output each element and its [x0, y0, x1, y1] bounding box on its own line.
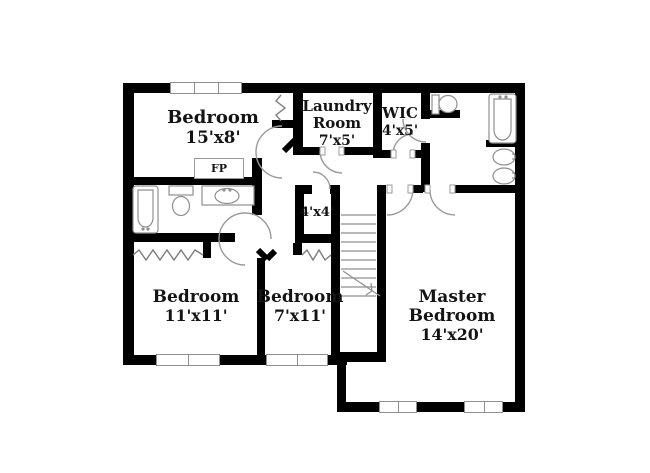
room-label-master: Master Bedroom 14'x20'	[394, 288, 510, 345]
room-label-bedroom-top: Bedroom 15'x8'	[150, 108, 276, 148]
room-label-bedroom-left: Bedroom 11'x11'	[133, 288, 259, 326]
door-leaves	[258, 136, 299, 259]
sink-vanity	[202, 186, 254, 205]
door-arc	[245, 213, 271, 239]
room-dims: 14'x20'	[420, 325, 483, 344]
room-label-closet-4x4: 4'x4'	[296, 205, 338, 221]
closet-zigzag	[133, 250, 203, 260]
window	[156, 354, 220, 366]
stairs-break-line	[343, 271, 380, 296]
fireplace-label: FP	[211, 162, 227, 175]
room-name: Bedroom	[153, 287, 240, 307]
room-dims: 11'x11'	[164, 306, 227, 325]
fireplace: FP	[194, 158, 244, 179]
door-jambs	[320, 147, 455, 193]
toilet	[432, 95, 457, 114]
room-dims: 7'x11'	[274, 306, 326, 325]
room-name: Bedroom	[257, 287, 344, 307]
door-leaf	[267, 251, 275, 259]
window	[266, 354, 328, 366]
closet-zigzag	[302, 250, 331, 260]
room-label-bedroom-mid: Bedroom 7'x11'	[255, 288, 345, 326]
window	[379, 401, 417, 413]
room-label-laundry: Laundry Room 7'x5'	[294, 98, 380, 149]
door-arc	[313, 172, 330, 189]
floor-plan: FP Bedroom 15'x8' Laundry Room 7'x5' WIC…	[0, 0, 650, 473]
bathtub	[133, 186, 158, 233]
room-name: WIC	[382, 104, 418, 122]
room-dims: 4'x4'	[300, 205, 334, 220]
closet-zigzag	[276, 95, 285, 121]
sink	[493, 168, 515, 184]
bathtub	[489, 94, 516, 143]
room-dims: 4'x5'	[382, 123, 418, 139]
window	[464, 401, 503, 413]
master-bathroom	[432, 94, 516, 184]
room-label-wic: WIC 4'x5'	[374, 105, 426, 139]
door-arc	[430, 190, 455, 215]
room-dims: 7'x5'	[319, 133, 355, 149]
window	[170, 82, 242, 94]
room-name: Laundry Room	[302, 97, 371, 132]
door-arc	[256, 152, 282, 178]
sink	[493, 149, 515, 165]
door-arc	[219, 213, 245, 239]
room-dims: 15'x8'	[185, 127, 240, 147]
fixtures-layer	[0, 0, 650, 473]
left-bathroom	[133, 186, 254, 233]
room-name: Bedroom	[167, 107, 259, 128]
room-name: Master Bedroom	[409, 287, 496, 326]
stairs	[341, 215, 380, 296]
door-arc	[219, 239, 245, 265]
toilet	[169, 186, 193, 216]
